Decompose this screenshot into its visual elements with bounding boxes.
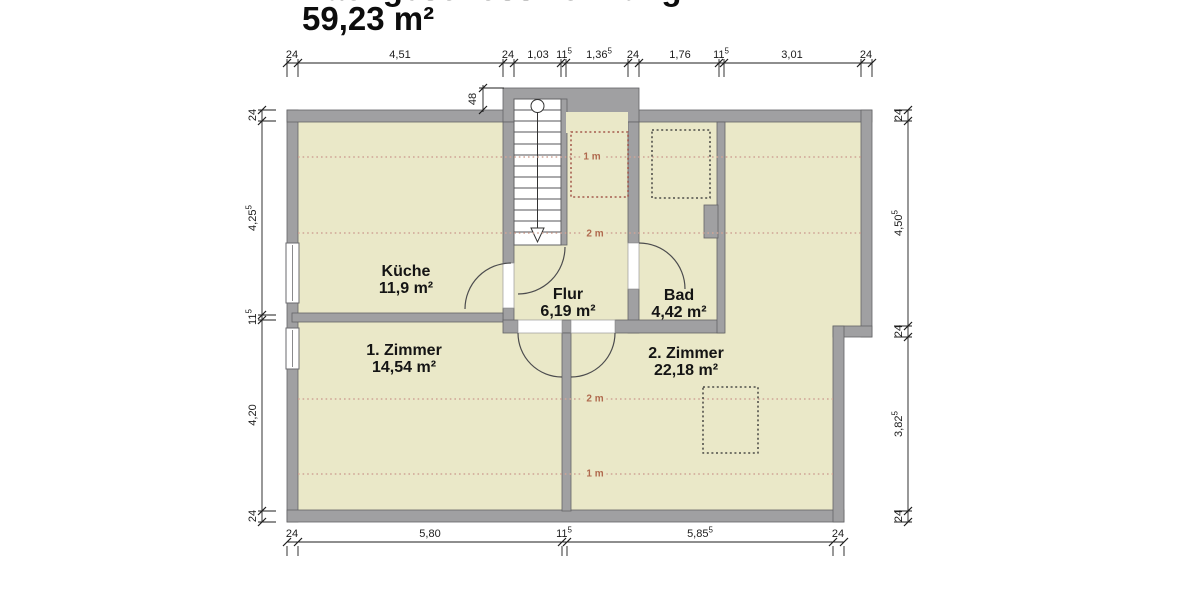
dim-value: 115 — [556, 49, 572, 61]
room-area-zimmer1: 14,54 m² — [372, 359, 436, 377]
dim-value: 115 — [556, 528, 572, 540]
dim-value: 4,505 — [893, 210, 905, 236]
room-area-bad: 4,42 m² — [651, 304, 706, 322]
room-label-flur: Flur — [553, 286, 583, 304]
room-label-bad: Bad — [664, 287, 694, 305]
dim-value: 24 — [247, 109, 259, 121]
dim-value: 24 — [832, 528, 844, 540]
dim-value: 4,255 — [247, 205, 259, 231]
dim-value: 1,76 — [669, 49, 690, 61]
dim-value: 4,51 — [389, 49, 410, 61]
wall-flur-bottom-left — [503, 320, 518, 333]
wall-bad-left-upper — [628, 122, 639, 243]
dim-value: 5,80 — [419, 528, 440, 540]
wall-flur-bottom-stub — [562, 320, 571, 333]
floor-niche — [566, 112, 628, 133]
height-label: 1 m — [580, 152, 603, 163]
dim-value: 24 — [286, 49, 298, 61]
wall-kueche-zimmer1 — [292, 313, 503, 322]
door-opening-zimmer2 — [571, 320, 615, 333]
dim-value: 24 — [502, 49, 514, 61]
room-area-kueche: 11,9 m² — [379, 280, 433, 298]
wall-outer-bottom — [287, 510, 844, 522]
wall-kueche-flur-upper — [503, 122, 514, 263]
dim-value: 5,855 — [687, 528, 713, 540]
wall-zimmer-divider — [562, 333, 571, 511]
dim-value: 24 — [247, 510, 259, 522]
door-opening-kueche — [503, 263, 514, 308]
dim-value: 115 — [713, 49, 729, 61]
room-label-kueche: Küche — [382, 263, 431, 281]
room-label-zimmer1: 1. Zimmer — [366, 342, 442, 360]
dim-value: 3,01 — [781, 49, 802, 61]
wall-outer-right-upper — [861, 110, 872, 337]
height-label: 1 m — [583, 469, 606, 480]
dim-value: 24 — [627, 49, 639, 61]
room-label-zimmer2: 2. Zimmer — [648, 345, 724, 363]
door-opening-bad — [628, 243, 639, 289]
door-opening-zimmer1 — [518, 320, 562, 333]
dim-value: 24 — [893, 109, 905, 121]
stair-start-circle — [531, 100, 544, 113]
dim-value: 1,365 — [586, 49, 612, 61]
floor-plan-page: Dachgeschosswohnung 59,23 m² 244,51241,0… — [0, 0, 1200, 600]
dim-value: 1,03 — [527, 49, 548, 61]
dim-value: 24 — [893, 510, 905, 522]
floor-plan-drawing — [0, 0, 1200, 600]
height-label: 2 m — [583, 229, 606, 240]
dim-value: 3,825 — [893, 411, 905, 437]
dim-value-48: 48 — [467, 93, 479, 105]
wall-outer-right-lower — [833, 326, 844, 522]
dim-value: 24 — [860, 49, 872, 61]
height-label: 2 m — [583, 394, 606, 405]
dim-value: 24 — [286, 528, 298, 540]
wall-chimney-pillar — [704, 205, 718, 238]
dim-value: 4,20 — [247, 404, 259, 425]
dim-value: 115 — [247, 309, 259, 325]
room-area-zimmer2: 22,18 m² — [654, 362, 718, 380]
dim-value: 24 — [893, 325, 905, 337]
room-area-flur: 6,19 m² — [540, 303, 595, 321]
